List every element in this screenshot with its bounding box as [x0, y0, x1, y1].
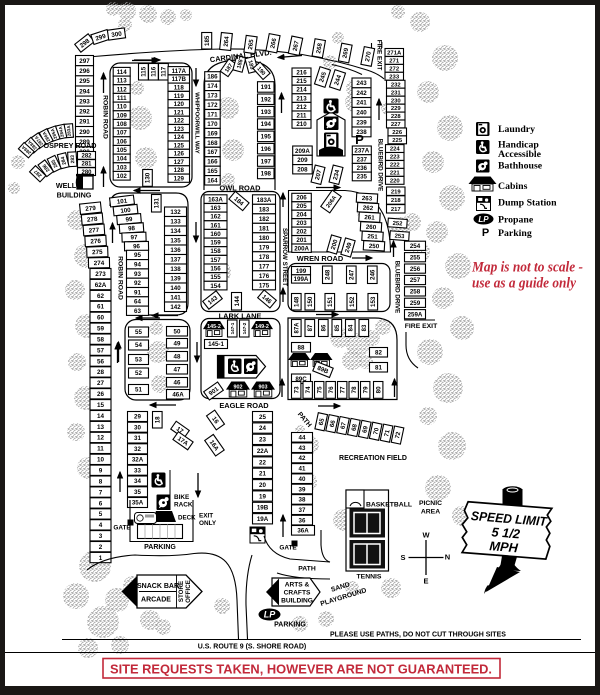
- svg-text:98: 98: [128, 225, 136, 233]
- svg-text:124: 124: [174, 134, 185, 141]
- svg-text:46: 46: [174, 380, 181, 387]
- svg-text:29: 29: [134, 414, 141, 421]
- svg-text:290: 290: [79, 129, 90, 136]
- svg-text:142: 142: [170, 304, 181, 311]
- svg-text:186: 186: [207, 74, 218, 81]
- svg-text:62A: 62A: [95, 282, 107, 289]
- svg-text:203: 203: [296, 220, 307, 227]
- svg-text:47: 47: [174, 367, 181, 374]
- svg-text:130: 130: [145, 172, 152, 183]
- svg-text:123: 123: [174, 126, 185, 133]
- svg-text:210: 210: [296, 121, 307, 128]
- svg-text:300: 300: [111, 31, 123, 39]
- svg-text:148: 148: [294, 296, 301, 307]
- svg-text:232: 232: [391, 82, 402, 88]
- svg-text:S: S: [400, 553, 405, 562]
- svg-text:209A: 209A: [295, 148, 310, 155]
- svg-text:BASKETBALL: BASKETBALL: [366, 502, 412, 509]
- svg-text:256: 256: [410, 266, 421, 273]
- svg-text:51: 51: [135, 387, 142, 394]
- svg-text:21: 21: [259, 471, 266, 478]
- svg-text:32: 32: [134, 446, 141, 453]
- svg-text:246: 246: [370, 269, 377, 280]
- svg-text:291: 291: [79, 119, 90, 126]
- svg-text:272: 272: [389, 67, 400, 73]
- svg-text:N: N: [445, 553, 450, 562]
- svg-text:248: 248: [325, 269, 332, 280]
- svg-text:RECREATION FIELD: RECREATION FIELD: [339, 455, 407, 462]
- svg-text:125: 125: [174, 142, 185, 149]
- svg-text:141: 141: [170, 295, 181, 302]
- svg-text:199: 199: [296, 268, 307, 275]
- svg-text:243: 243: [356, 80, 367, 87]
- svg-text:255: 255: [410, 254, 421, 261]
- svg-text:35: 35: [134, 489, 141, 496]
- svg-text:231: 231: [391, 90, 402, 96]
- svg-text:SITE REQUESTS TAKEN, HOWEVER A: SITE REQUESTS TAKEN, HOWEVER ARE NOT GUA…: [110, 662, 492, 677]
- svg-text:ARTS &: ARTS &: [285, 582, 310, 589]
- svg-text:216: 216: [296, 70, 307, 77]
- svg-text:262: 262: [363, 205, 374, 213]
- svg-text:222: 222: [390, 163, 401, 169]
- svg-text:149-2: 149-2: [255, 324, 269, 330]
- svg-text:19A: 19A: [257, 516, 269, 523]
- svg-text:212: 212: [296, 104, 307, 111]
- svg-text:Map is not to scale -: Map is not to scale -: [471, 260, 583, 276]
- svg-text:13: 13: [97, 424, 105, 431]
- svg-text:43: 43: [299, 445, 306, 452]
- svg-text:4: 4: [99, 522, 103, 529]
- svg-text:153: 153: [370, 296, 377, 307]
- svg-text:206: 206: [296, 195, 307, 202]
- svg-text:253: 253: [394, 234, 405, 241]
- svg-text:205: 205: [296, 203, 307, 210]
- svg-text:251: 251: [367, 233, 378, 241]
- svg-text:223: 223: [390, 155, 401, 161]
- svg-text:151: 151: [327, 296, 334, 307]
- svg-text:18: 18: [155, 416, 162, 423]
- svg-text:229: 229: [391, 106, 402, 112]
- svg-text:220: 220: [390, 179, 401, 185]
- svg-text:283A: 283A: [66, 125, 72, 137]
- svg-text:9: 9: [99, 468, 103, 475]
- svg-text:282: 282: [81, 154, 92, 160]
- svg-text:140: 140: [170, 285, 181, 292]
- svg-text:225: 225: [392, 138, 403, 144]
- svg-text:87A: 87A: [295, 322, 301, 334]
- svg-text:44: 44: [299, 435, 306, 442]
- svg-text:PARKING: PARKING: [144, 544, 176, 551]
- svg-text:131: 131: [154, 197, 161, 208]
- svg-text:31: 31: [134, 435, 141, 442]
- svg-text:U.S. ROUTE 9 (S. SHORE ROAD): U.S. ROUTE 9 (S. SHORE ROAD): [198, 644, 307, 651]
- svg-text:PICNIC: PICNIC: [419, 500, 442, 507]
- svg-text:155: 155: [210, 274, 221, 281]
- svg-text:178: 178: [259, 254, 270, 261]
- svg-text:19: 19: [259, 493, 266, 500]
- svg-text:250: 250: [369, 243, 380, 251]
- svg-text:152: 152: [349, 296, 356, 307]
- svg-text:108: 108: [117, 121, 128, 128]
- svg-text:271A: 271A: [387, 51, 402, 57]
- svg-text:247: 247: [349, 269, 356, 280]
- svg-text:292: 292: [79, 109, 90, 116]
- svg-text:196: 196: [261, 146, 272, 153]
- svg-text:102: 102: [117, 173, 128, 180]
- svg-text:25: 25: [259, 414, 266, 421]
- svg-text:28: 28: [97, 369, 105, 376]
- svg-text:177: 177: [259, 263, 270, 270]
- svg-text:162: 162: [210, 214, 221, 221]
- svg-text:297: 297: [79, 58, 90, 65]
- svg-text:261: 261: [364, 214, 375, 222]
- svg-text:11: 11: [97, 446, 104, 453]
- svg-text:265: 265: [247, 38, 255, 50]
- svg-text:230: 230: [391, 98, 402, 104]
- svg-text:208: 208: [297, 167, 308, 174]
- svg-text:40: 40: [299, 476, 306, 483]
- svg-text:174: 174: [207, 83, 218, 90]
- svg-text:199A: 199A: [294, 276, 309, 283]
- svg-text:165: 165: [207, 168, 218, 175]
- svg-text:PLEASE USE PATHS, DO NOT CUT T: PLEASE USE PATHS, DO NOT CUT THROUGH SIT…: [330, 632, 506, 639]
- svg-text:32A: 32A: [132, 457, 144, 464]
- svg-text:242: 242: [356, 90, 367, 97]
- svg-text:20: 20: [259, 482, 266, 489]
- svg-text:33: 33: [134, 468, 141, 475]
- svg-text:49: 49: [174, 341, 181, 348]
- svg-text:38: 38: [299, 497, 306, 504]
- svg-text:191: 191: [261, 84, 272, 91]
- svg-text:LP: LP: [264, 610, 276, 620]
- svg-text:171: 171: [207, 111, 218, 118]
- svg-text:5: 5: [99, 511, 103, 518]
- svg-text:295: 295: [79, 78, 90, 85]
- svg-text:275: 275: [92, 249, 103, 256]
- svg-text:192: 192: [261, 97, 272, 104]
- svg-text:150: 150: [307, 296, 314, 307]
- svg-text:157: 157: [210, 257, 221, 264]
- svg-text:257: 257: [410, 277, 421, 284]
- svg-text:161: 161: [210, 222, 221, 229]
- svg-text:103: 103: [117, 164, 128, 171]
- svg-text:FIRE EXIT: FIRE EXIT: [405, 323, 438, 330]
- svg-text:86: 86: [322, 324, 328, 331]
- svg-text:117A: 117A: [172, 68, 187, 75]
- svg-text:36A: 36A: [297, 528, 309, 535]
- svg-text:95: 95: [134, 252, 141, 259]
- svg-text:Bathhouse: Bathhouse: [498, 161, 543, 172]
- svg-text:139: 139: [170, 276, 181, 283]
- svg-text:226: 226: [392, 130, 403, 136]
- svg-text:278: 278: [87, 216, 99, 224]
- svg-text:281: 281: [81, 162, 92, 168]
- svg-text:110: 110: [117, 104, 128, 111]
- svg-text:99: 99: [125, 216, 133, 224]
- svg-text:Parking: Parking: [498, 228, 532, 239]
- svg-text:RACK: RACK: [174, 502, 193, 509]
- svg-text:903: 903: [259, 385, 268, 391]
- svg-text:46A: 46A: [172, 392, 184, 399]
- svg-text:114: 114: [117, 69, 128, 76]
- svg-text:296: 296: [79, 68, 90, 75]
- svg-text:77: 77: [339, 386, 346, 393]
- svg-text:56: 56: [97, 358, 105, 365]
- svg-text:118: 118: [174, 85, 185, 92]
- svg-text:218: 218: [391, 198, 402, 204]
- svg-text:277: 277: [88, 227, 99, 235]
- svg-text:198: 198: [261, 171, 272, 178]
- svg-text:WREN ROAD: WREN ROAD: [297, 254, 344, 263]
- svg-text:167: 167: [207, 149, 218, 156]
- svg-text:138: 138: [170, 266, 181, 273]
- svg-text:BLUEBIRD DRIVE: BLUEBIRD DRIVE: [394, 261, 401, 314]
- svg-text:39: 39: [299, 486, 306, 493]
- svg-text:172: 172: [207, 102, 218, 109]
- svg-text:OSPREY ROAD: OSPREY ROAD: [44, 141, 97, 150]
- svg-text:154: 154: [210, 283, 221, 290]
- svg-text:50: 50: [174, 329, 181, 336]
- svg-text:237A: 237A: [354, 148, 369, 155]
- svg-text:15: 15: [97, 402, 105, 409]
- svg-text:P: P: [482, 227, 489, 239]
- svg-text:BUILDING: BUILDING: [57, 191, 92, 200]
- svg-text:126: 126: [174, 151, 185, 158]
- svg-text:183A: 183A: [257, 197, 272, 204]
- svg-text:105: 105: [117, 147, 128, 154]
- svg-text:228: 228: [391, 114, 402, 120]
- svg-text:168: 168: [207, 140, 218, 147]
- svg-text:101: 101: [117, 198, 129, 206]
- svg-text:147-2: 147-2: [242, 322, 247, 334]
- svg-text:79: 79: [362, 386, 369, 393]
- svg-text:211: 211: [297, 113, 308, 120]
- svg-text:111: 111: [117, 95, 127, 102]
- svg-text:241: 241: [356, 100, 367, 107]
- svg-text:Cabins: Cabins: [498, 181, 528, 192]
- svg-text:85: 85: [335, 324, 341, 331]
- svg-text:180: 180: [259, 235, 270, 242]
- svg-text:7: 7: [99, 489, 103, 496]
- svg-text:239: 239: [356, 119, 367, 126]
- svg-text:200A: 200A: [294, 245, 309, 252]
- svg-text:30: 30: [134, 425, 141, 432]
- svg-text:10: 10: [97, 457, 105, 464]
- svg-text:132: 132: [170, 209, 181, 216]
- svg-text:87: 87: [308, 324, 314, 331]
- svg-text:PARKING: PARKING: [274, 622, 306, 629]
- svg-text:24: 24: [259, 425, 266, 432]
- svg-text:185: 185: [204, 35, 211, 46]
- svg-text:182: 182: [259, 216, 270, 223]
- svg-text:STORE: STORE: [178, 581, 185, 602]
- svg-text:63: 63: [134, 308, 141, 315]
- svg-text:121: 121: [174, 109, 185, 116]
- svg-text:81: 81: [375, 365, 382, 372]
- svg-text:22: 22: [259, 459, 266, 466]
- svg-text:219: 219: [391, 189, 402, 195]
- svg-text:194: 194: [261, 121, 272, 128]
- svg-text:147-1: 147-1: [230, 322, 235, 334]
- svg-text:23: 23: [259, 437, 266, 444]
- svg-text:293: 293: [79, 98, 90, 105]
- svg-text:73: 73: [293, 386, 300, 393]
- svg-text:1: 1: [99, 555, 103, 562]
- svg-text:263: 263: [362, 195, 373, 203]
- svg-text:27: 27: [97, 380, 105, 387]
- svg-text:Laundry: Laundry: [498, 124, 535, 135]
- svg-text:294: 294: [79, 88, 90, 95]
- svg-text:53: 53: [135, 357, 142, 364]
- svg-text:115: 115: [141, 66, 148, 77]
- svg-text:97: 97: [130, 234, 138, 241]
- svg-text:259: 259: [410, 300, 421, 307]
- svg-text:173: 173: [207, 93, 218, 100]
- svg-text:133: 133: [170, 219, 181, 226]
- svg-text:179: 179: [259, 244, 270, 251]
- svg-text:84: 84: [349, 324, 355, 331]
- svg-text:214: 214: [296, 87, 307, 94]
- svg-text:107: 107: [117, 130, 128, 137]
- svg-text:235: 235: [357, 174, 368, 181]
- svg-text:209: 209: [297, 157, 308, 164]
- svg-text:WHIPPOORWILL WAY: WHIPPOORWILL WAY: [194, 92, 200, 153]
- svg-text:P: P: [355, 132, 364, 147]
- svg-text:201: 201: [296, 237, 307, 244]
- svg-text:271: 271: [389, 59, 400, 65]
- svg-text:74: 74: [305, 386, 312, 393]
- svg-text:57: 57: [97, 347, 105, 354]
- svg-text:WELL: WELL: [56, 181, 77, 190]
- svg-text:128: 128: [174, 167, 185, 174]
- svg-text:42: 42: [299, 455, 306, 462]
- svg-text:LARK LANE: LARK LANE: [219, 312, 262, 321]
- svg-text:82: 82: [375, 350, 382, 357]
- svg-text:104: 104: [117, 156, 128, 163]
- svg-text:BUILDING: BUILDING: [281, 598, 313, 605]
- svg-text:EXIT: EXIT: [199, 513, 213, 520]
- svg-text:276: 276: [90, 238, 101, 246]
- svg-text:54: 54: [135, 342, 142, 349]
- svg-text:80: 80: [375, 386, 382, 393]
- svg-text:193: 193: [261, 109, 272, 116]
- svg-text:227: 227: [391, 122, 402, 128]
- svg-text:145-1: 145-1: [208, 341, 224, 348]
- svg-text:W: W: [422, 531, 430, 540]
- svg-text:169: 169: [207, 130, 218, 137]
- svg-text:61: 61: [97, 304, 105, 311]
- svg-text:OFFICE: OFFICE: [185, 580, 192, 603]
- svg-text:233: 233: [389, 74, 400, 80]
- svg-text:14: 14: [97, 413, 105, 420]
- svg-text:48: 48: [174, 354, 181, 361]
- svg-text:BIKE: BIKE: [174, 494, 190, 501]
- svg-text:204: 204: [296, 212, 307, 219]
- svg-text:SNACK BAR: SNACK BAR: [137, 583, 179, 590]
- svg-text:88: 88: [298, 345, 305, 352]
- svg-text:176: 176: [259, 273, 270, 280]
- svg-text:221: 221: [390, 171, 401, 177]
- svg-text:127: 127: [174, 159, 185, 166]
- svg-text:274: 274: [94, 260, 105, 267]
- svg-text:160: 160: [210, 231, 221, 238]
- svg-text:236: 236: [357, 165, 368, 172]
- svg-text:129: 129: [174, 176, 185, 183]
- svg-text:120: 120: [174, 101, 185, 108]
- svg-text:6: 6: [99, 500, 103, 507]
- svg-text:260: 260: [366, 224, 377, 232]
- svg-text:100: 100: [120, 207, 132, 215]
- svg-text:8: 8: [99, 478, 103, 485]
- svg-text:ROBIN ROAD: ROBIN ROAD: [102, 95, 109, 139]
- svg-text:195: 195: [261, 134, 272, 141]
- svg-text:163: 163: [210, 205, 221, 212]
- svg-text:252: 252: [392, 221, 403, 228]
- svg-text:76: 76: [328, 386, 335, 393]
- svg-text:106: 106: [117, 138, 128, 145]
- svg-text:122: 122: [174, 118, 185, 125]
- svg-text:158: 158: [210, 248, 221, 255]
- svg-text:175: 175: [259, 282, 270, 289]
- svg-text:60: 60: [97, 315, 105, 322]
- svg-text:ROBIN ROAD: ROBIN ROAD: [117, 256, 124, 300]
- svg-text:Propane: Propane: [498, 215, 534, 226]
- svg-text:170: 170: [207, 121, 218, 128]
- svg-text:217: 217: [391, 207, 402, 213]
- svg-text:62: 62: [97, 293, 105, 300]
- svg-text:254: 254: [410, 243, 421, 250]
- svg-text:CRAFTS: CRAFTS: [284, 590, 311, 597]
- svg-text:83: 83: [362, 324, 368, 331]
- svg-text:136: 136: [170, 247, 181, 254]
- svg-text:273: 273: [95, 271, 106, 278]
- svg-text:94: 94: [134, 262, 141, 269]
- svg-text:135: 135: [170, 238, 181, 245]
- svg-text:use as a guide only: use as a guide only: [472, 276, 576, 292]
- svg-text:34: 34: [134, 478, 141, 485]
- svg-text:MPH: MPH: [489, 538, 519, 555]
- svg-text:36: 36: [299, 517, 306, 524]
- svg-text:ARCADE: ARCADE: [141, 597, 171, 604]
- svg-text:19B: 19B: [257, 505, 269, 512]
- svg-text:52: 52: [135, 370, 142, 377]
- svg-text:LP: LP: [478, 215, 489, 224]
- svg-text:35A: 35A: [132, 500, 144, 507]
- svg-text:59: 59: [97, 326, 105, 333]
- svg-text:ONLY: ONLY: [199, 520, 217, 527]
- svg-text:197: 197: [261, 158, 272, 165]
- svg-text:144: 144: [234, 295, 241, 306]
- svg-text:166: 166: [207, 159, 218, 166]
- svg-text:145-2: 145-2: [207, 324, 221, 330]
- svg-text:TENNIS: TENNIS: [357, 574, 382, 581]
- svg-text:22A: 22A: [257, 448, 269, 455]
- svg-text:183: 183: [259, 206, 270, 213]
- svg-text:78: 78: [351, 386, 358, 393]
- svg-text:224: 224: [390, 147, 401, 153]
- svg-text:58: 58: [97, 337, 105, 344]
- svg-text:137: 137: [170, 257, 181, 264]
- svg-text:279: 279: [85, 205, 97, 213]
- svg-text:55: 55: [135, 329, 142, 336]
- svg-text:41: 41: [299, 466, 306, 473]
- svg-text:259A: 259A: [408, 311, 423, 318]
- svg-text:FIRE EXIT: FIRE EXIT: [376, 40, 383, 71]
- svg-text:12: 12: [97, 435, 105, 442]
- svg-text:PATH: PATH: [298, 566, 316, 573]
- svg-text:91: 91: [134, 289, 141, 296]
- svg-text:92: 92: [134, 280, 141, 287]
